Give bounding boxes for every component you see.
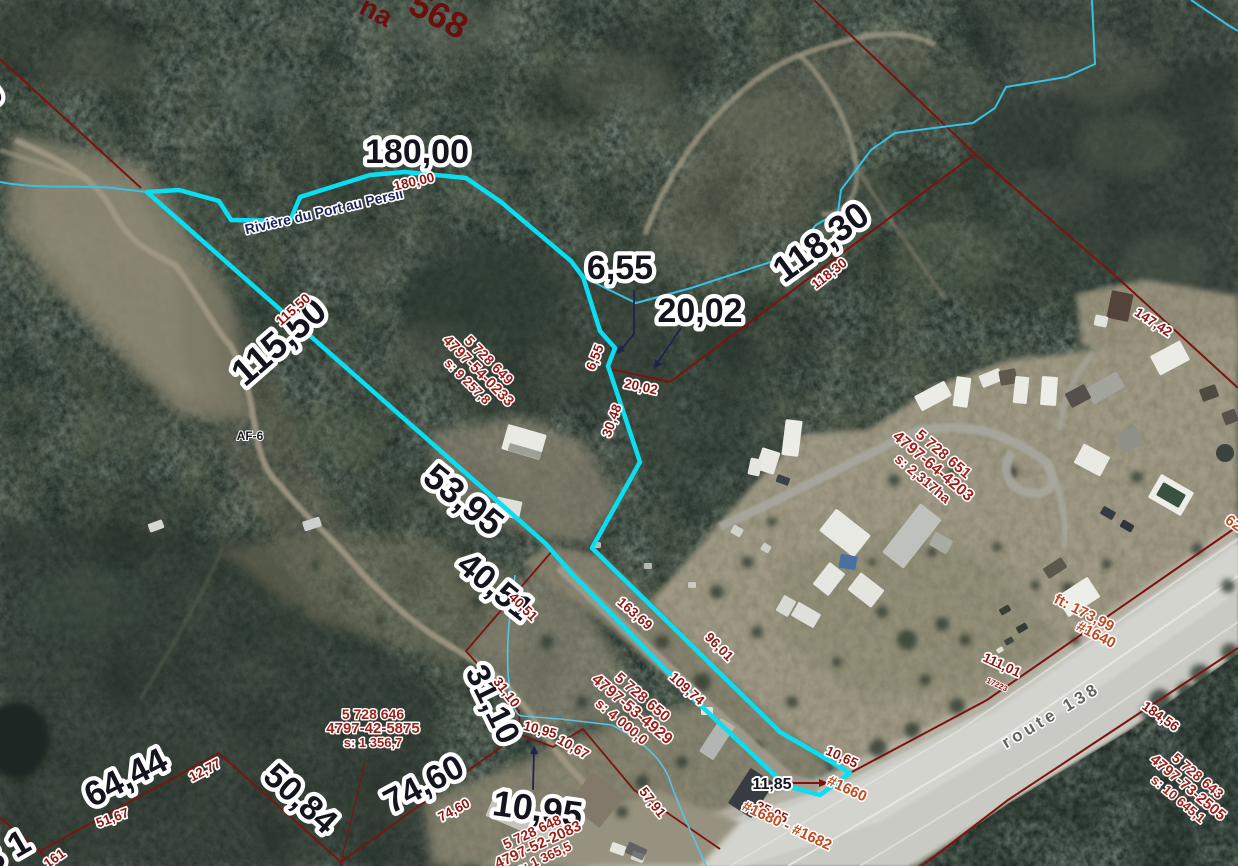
svg-text:20,02: 20,02: [657, 292, 742, 330]
svg-text:11,85: 11,85: [752, 776, 791, 793]
svg-text:s: 1 356,7: s: 1 356,7: [344, 735, 403, 750]
svg-text:AF-6: AF-6: [237, 429, 264, 443]
svg-text:180,00: 180,00: [365, 133, 469, 171]
svg-text:6,55: 6,55: [587, 249, 653, 287]
